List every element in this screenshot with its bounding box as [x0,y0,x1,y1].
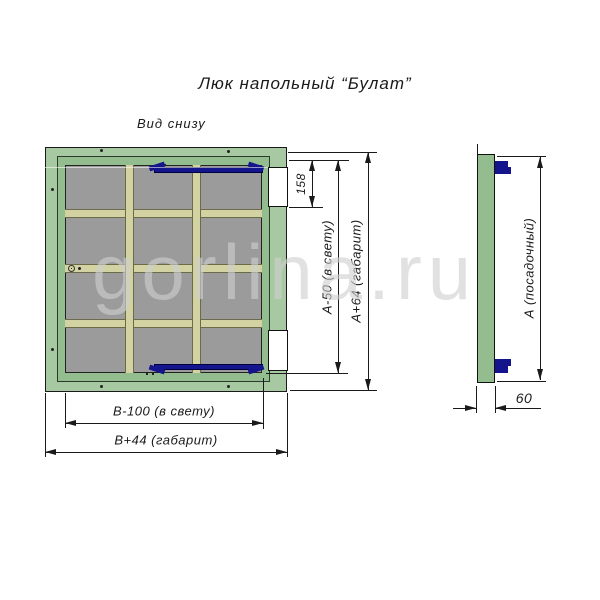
dimension-label-158: 158 [294,173,308,195]
dimension-line-a-seat [540,157,541,380]
arrow-up-icon [309,160,315,171]
extension-line [476,386,477,413]
dimension-line-b-clear [65,423,263,424]
hinge-recess-bottom [268,330,288,371]
fastener-mark [100,149,103,152]
fastener-mark [227,385,230,388]
extension-line [497,381,546,382]
hinge-recess-top [268,167,288,207]
view-label-bottom-view: Вид снизу [137,116,206,131]
arrow-right-icon [465,405,476,411]
dimension-label-b-clear: В-100 (в свету) [113,404,215,419]
grid-rib-horizontal [65,209,262,218]
side-latch-top [495,167,511,174]
dimension-label-thickness: 60 [516,390,533,406]
extension-line [45,393,46,457]
fastener-mark [78,267,81,270]
latch-detail-mark [146,373,148,375]
arrow-right-icon [252,420,263,426]
arrow-down-icon [335,362,341,373]
center-mark-icon [68,265,75,272]
extension-line [289,207,323,208]
dimension-label-b-overall: В+44 (габарит) [114,433,217,448]
extension-line [477,144,478,154]
arrow-right-icon [276,449,287,455]
arrow-down-icon [365,379,371,390]
arrow-left-icon [45,449,56,455]
side-latch-bottom [495,366,508,373]
arrow-down-icon [537,369,543,380]
dimension-label-a-seat: А (посадочный) [522,218,537,319]
fastener-mark [51,348,54,351]
grid-rib-horizontal [65,319,262,328]
construction-line [30,167,268,168]
drawing-title: Люк напольный “Булат” [198,74,411,94]
fastener-mark [227,150,230,153]
arrow-left-icon [495,405,506,411]
arrow-left-icon [65,420,76,426]
extension-line [288,152,377,153]
arrow-up-icon [537,157,543,168]
extension-line [287,393,288,457]
extension-line [263,378,264,429]
latch-detail-mark [152,373,154,375]
side-latch-bottom [495,359,511,366]
extension-line [290,390,377,391]
dimension-line-b-overall [45,452,287,453]
extension-line [266,373,348,374]
fastener-mark [51,188,54,191]
arrow-up-icon [335,160,341,171]
arrow-down-icon [309,196,315,207]
arrow-up-icon [365,152,371,163]
fastener-mark [100,385,103,388]
drawing-canvas: Люк напольный “Булат” Вид снизу 158 [0,0,600,600]
side-view-profile [477,154,495,383]
watermark-text: gorlina.ru [92,233,477,311]
